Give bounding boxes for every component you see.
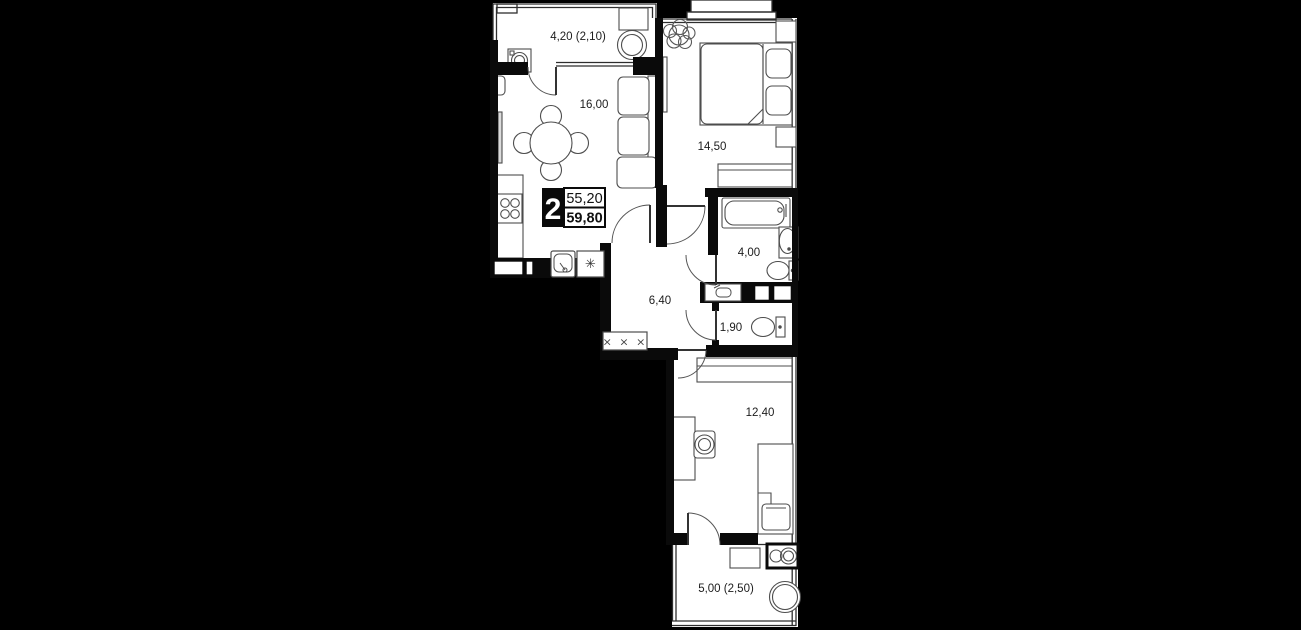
balcony-cabinet bbox=[619, 8, 648, 30]
room-label-wc: 1,90 bbox=[720, 322, 742, 334]
laundry-unit-icon bbox=[767, 544, 798, 568]
pillow bbox=[766, 86, 791, 115]
nightstand bbox=[776, 21, 796, 42]
office-chair-icon bbox=[694, 431, 715, 458]
room-label-balcony-top: 4,20 (2,10) bbox=[550, 31, 606, 43]
room-label-kitchen-living: 16,00 bbox=[580, 99, 609, 111]
coat-rack-icon: × × × bbox=[603, 332, 648, 350]
round-chair-icon bbox=[770, 582, 801, 613]
toilet-icon bbox=[752, 317, 786, 337]
stove-icon bbox=[497, 194, 522, 223]
wc-furniture bbox=[752, 317, 786, 337]
vent-shaft bbox=[754, 285, 770, 301]
vent-shaft bbox=[773, 285, 792, 301]
floor-plan-svg: ✳ × × × bbox=[0, 0, 1301, 630]
pillow bbox=[766, 49, 791, 78]
wardrobe bbox=[697, 358, 792, 382]
kitchen-cabinet bbox=[494, 261, 523, 275]
coat-rack-symbol: × × × bbox=[603, 336, 648, 349]
desk bbox=[672, 417, 695, 480]
unit-rooms-count: 2 bbox=[545, 193, 562, 226]
fridge-icon: ✳ bbox=[577, 251, 604, 277]
single-bed bbox=[758, 444, 793, 534]
unit-area-living: 59,80 bbox=[566, 211, 602, 227]
balcony-table bbox=[730, 548, 760, 568]
wall-mirror bbox=[663, 57, 667, 112]
floor-plan: ✳ × × × bbox=[0, 0, 1301, 630]
room-label-hallway: 6,40 bbox=[649, 295, 671, 307]
double-bed bbox=[700, 43, 792, 125]
sofa bbox=[617, 76, 657, 188]
tv-icon bbox=[498, 112, 502, 163]
dresser bbox=[718, 164, 792, 187]
kitchen-sink-icon bbox=[551, 251, 575, 277]
room-label-bathroom: 4,00 bbox=[738, 247, 760, 259]
room-label-bedroom-2: 12,40 bbox=[746, 407, 775, 419]
round-chair-icon bbox=[618, 31, 647, 60]
nightstand bbox=[776, 127, 796, 147]
unit-area-total: 55,20 bbox=[566, 191, 602, 207]
kitchen-cabinet bbox=[526, 261, 533, 275]
washbasin-icon bbox=[705, 284, 741, 301]
unit-badge: 2 55,20 59,80 bbox=[542, 188, 605, 227]
fridge-symbol: ✳ bbox=[585, 257, 596, 272]
room-label-balcony-bottom: 5,00 (2,50) bbox=[698, 583, 754, 595]
bathtub-icon bbox=[722, 198, 790, 228]
room-label-bedroom: 14,50 bbox=[698, 141, 727, 153]
